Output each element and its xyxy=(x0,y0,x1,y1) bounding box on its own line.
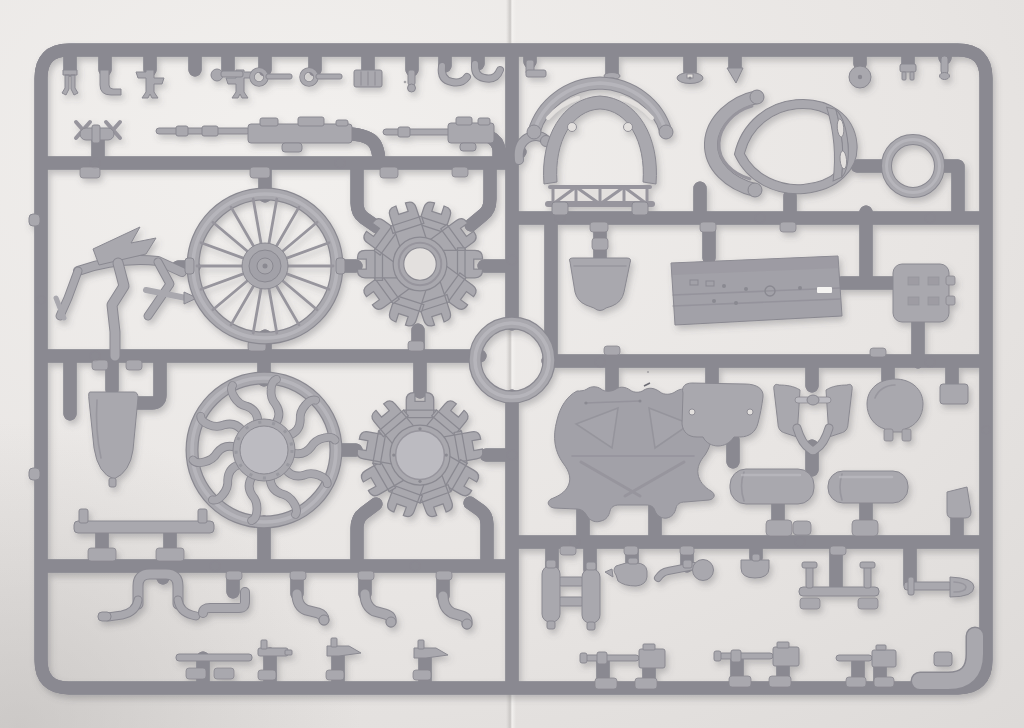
ball-pin xyxy=(940,56,950,80)
sprue-svg xyxy=(0,0,1024,728)
gate-nub xyxy=(29,214,40,226)
gate-nub xyxy=(29,468,40,480)
photo-of-sprue: Photograph of a light-grey injection-mou… xyxy=(0,0,1024,728)
grooved-block xyxy=(354,70,382,87)
dust-speck xyxy=(647,371,649,373)
fuel-tank-2 xyxy=(828,471,908,503)
stowage-box-2 xyxy=(947,487,971,518)
small-pin xyxy=(408,70,416,92)
ammo-box xyxy=(893,264,955,322)
rotary-engine-front xyxy=(358,200,483,329)
flat-bar xyxy=(176,654,252,661)
fuel-tank-1 xyxy=(730,469,814,504)
dust-speck xyxy=(404,81,407,84)
small-disc xyxy=(849,66,871,88)
winged-fitting xyxy=(677,73,703,84)
stowage-box-1 xyxy=(940,384,968,404)
white-reflection-mark xyxy=(817,287,832,293)
floor-panel xyxy=(671,256,842,325)
